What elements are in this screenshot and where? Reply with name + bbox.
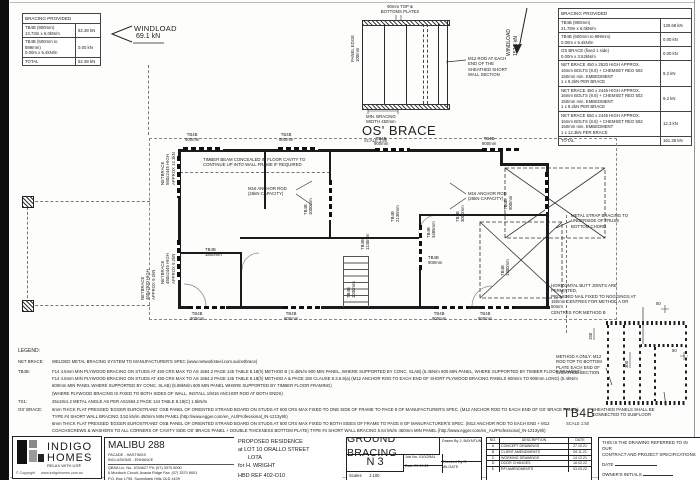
indigo-logo-icon xyxy=(29,450,37,462)
table-row: NET BRACE 450 x 2445 HIGH APPROX. 16mm B… xyxy=(559,87,691,112)
brace-panel xyxy=(177,156,180,198)
contract-date-label: DATE xyxy=(602,462,613,467)
drawing-sheet: BRACING PROVIDED TB4B (900mm) 13.73m x 6… xyxy=(0,0,700,480)
rev-date: 18.02.22 xyxy=(569,461,591,466)
row-value: 82.38 kN xyxy=(76,24,100,37)
plan-label: TB4B 900mm xyxy=(428,255,442,266)
contract-line: CONTRACT AND PROJECT SPECIFICATIONS xyxy=(602,452,698,458)
row-value: 130.68 kN xyxy=(661,19,691,32)
rev-desc: CONCEPT DRAWINGS xyxy=(500,444,569,449)
row-desc: NET BRACE 550 x 2445 HIGH APPROX. 16mm B… xyxy=(559,112,661,136)
bracing-table-left: BRACING PROVIDED TB4B (900mm) 13.73m x 6… xyxy=(22,13,101,66)
wall-segment xyxy=(240,252,242,308)
plan-label: TB4B 900mm xyxy=(185,132,199,143)
rev-col-desc: DESCRIPTION xyxy=(500,438,569,443)
row-value: 9.2 kN xyxy=(661,87,691,111)
tb4b-bottom-plate xyxy=(606,401,687,405)
table-row: NET BRACE 550 x 2445 HIGH APPROX. 16mm B… xyxy=(559,112,691,137)
brace-panel xyxy=(329,180,332,220)
row-value: 9.2 kN xyxy=(661,61,691,85)
timber-beam-note: TIMBER BEAM CONCEALED IN FLOOR CAVITY TO… xyxy=(203,157,323,168)
legend-title: LEGEND: xyxy=(18,348,40,355)
os-detail-stud xyxy=(438,24,439,104)
table-row: TB4B (900mm) 21.78m x 6.0kN/m 130.68 kN xyxy=(559,19,691,33)
tb4b-subfloor-note: SHEATHED PANELS SHALL BE CONNECTED TO SU… xyxy=(592,407,672,418)
panel-edge-dimension-line xyxy=(148,65,149,135)
project-ref: HBD REF 402-O10 xyxy=(238,473,338,480)
rev-date: 27.10.21 xyxy=(569,444,591,449)
legend-tb4b-line: F14 4.5mm MIN PLYWOOD BRACING ON STUDS A… xyxy=(52,376,578,381)
address-line: P.O. Box 1795, Sunnybank Hills QLD 4109 xyxy=(108,477,234,480)
date-value: 20.10.21 xyxy=(414,464,429,468)
plan-label: TB4B 3485mm xyxy=(426,221,437,238)
table-row: TB4B (600mm to 899mm) 0.00m x 5.4kN/m 0.… xyxy=(559,33,691,47)
brace-panel xyxy=(545,172,548,212)
table-row: TB4B (600mm to 899mm) 0.00m x 5.4kN/m 0.… xyxy=(23,38,100,58)
legend-os-line: TYPE #4 SHORT WALL BRACING 3.52 kN/m 450… xyxy=(52,414,288,419)
legend-tb4b-line: 600mm MIN PANEL WHERE SUPPORTED BY CONC.… xyxy=(52,383,332,388)
legend-tb4b-line: F14 4.5mm MIN PLYWOOD BRACING ON STUDS A… xyxy=(52,369,581,374)
inclusions-line: INCLUSIONS - ENHANCE xyxy=(108,458,234,465)
logo-tagline: RELAX WITH US® xyxy=(47,463,81,468)
deck-dashed-line xyxy=(30,201,150,202)
rev-desc: DOOR CHANGES xyxy=(500,461,569,466)
wall-segment xyxy=(240,237,422,239)
tb4b-dim-300: 300 xyxy=(624,361,629,368)
contract-owner-row: OWNER'S INITIALS xyxy=(602,471,698,478)
rev-date: 14.12.21 xyxy=(569,456,591,461)
plan-label: TB4B 2130mm xyxy=(390,205,401,222)
total-label: TOTAL xyxy=(23,58,76,66)
netbrace-label: NETBRACE 450x2445 HIGH APPROX 9.2kN xyxy=(160,253,176,284)
bracing-table-right: BRACING PROVIDED TB4B (900mm) 21.78m x 6… xyxy=(558,8,692,146)
os-detail-top-label: 90mm TOP & BOTTOMS PLATES xyxy=(378,4,422,15)
rev-col-date: DATE xyxy=(569,438,591,443)
section-dash-dot-line xyxy=(566,215,567,333)
row-value: 0.00 kN xyxy=(661,33,691,46)
plan-label: TB4B 900mm xyxy=(279,132,293,143)
builder-box: MALIBU 288 FACADE - HASTINGS INCLUSIONS … xyxy=(104,437,238,480)
tb4b-dim-150: 150 xyxy=(588,333,593,340)
drawn-value: J. BAYNTUN xyxy=(460,439,482,443)
contract-owner-label: OWNER'S INITIALS xyxy=(602,472,642,477)
os-detail-stud xyxy=(406,24,407,104)
rev-no: D xyxy=(487,461,500,466)
brace-panel xyxy=(419,225,422,270)
tb4b-top-plate xyxy=(606,321,687,325)
checked-label: Checked By xyxy=(442,460,462,464)
os-detail-right-label: M12 ROD AT EACH END OF THE SHEATHED SHOR… xyxy=(468,56,514,77)
os-detail-rod-dashed xyxy=(427,24,428,104)
tb4b-dim-50: 50 xyxy=(672,348,677,353)
indigo-logo-icon xyxy=(29,440,37,448)
legend-os-line: 6mm THICK FLAT PRESSED 'EGGER EUROSTRAND… xyxy=(52,421,550,426)
legend-tb4b-label: TB4B: xyxy=(18,369,30,374)
legend-ts1-text: 25x18x1.2 METAL ANGLE AS PER AS1684.2 PA… xyxy=(52,399,207,404)
rev-no: B xyxy=(487,450,500,455)
row-value: 12.3 kN xyxy=(661,112,691,136)
legend-os-line: COACHSCREWS & WASHERS TO ALL CORNERS OF … xyxy=(52,428,546,433)
revisions-box: NO. DESCRIPTION DATE A CONCEPT DRAWINGS … xyxy=(486,437,592,480)
row-desc: NET BRACE 450 x 2520 HIGH APPROX. 16mm B… xyxy=(559,61,661,85)
windload-right-value: 157.3 kN xyxy=(513,36,519,56)
butt-joints-note: HORIZONTAL BUTT JOINTS ARE PERMITTED, PR… xyxy=(551,283,637,315)
brace-panel xyxy=(375,148,410,151)
windload-left-label: WINDLOAD xyxy=(134,24,177,33)
brace-panel xyxy=(188,306,226,309)
os-detail-left-label: PANEL EDGE 100mm xyxy=(350,35,361,62)
project-line: at LOT 10 ORALLO STREET xyxy=(238,447,338,454)
deck-post xyxy=(22,300,34,312)
table-header: BRACING PROVIDED xyxy=(23,14,100,24)
table-row: TB4B (900mm) 13.73m x 6.0kN/m 82.38 kN xyxy=(23,24,100,38)
plan-label: TB4B 1130mm xyxy=(360,234,371,250)
netbrace-label: NETBRACE 550x2445 HIGH APPROX 12.3kN xyxy=(160,152,176,185)
brace-panel xyxy=(434,306,469,309)
logo-box: INDIGO HOMES RELAX WITH US® © Copyright … xyxy=(12,436,102,479)
tb4b-stud xyxy=(654,347,656,401)
job-label: Job No. xyxy=(405,455,418,459)
table-header: BRACING PROVIDED xyxy=(559,9,691,19)
row-desc: TB4B (600mm to 899mm) 0.00m x 5.4kN/m xyxy=(23,38,76,57)
plan-label: TB4B 900mm xyxy=(284,311,298,322)
job-value: 010ORAL xyxy=(419,455,436,459)
windload-right-label: WINDLOAD xyxy=(506,29,512,56)
brace-panel xyxy=(480,306,515,309)
anchor-rod-note: M16 ANCHOR ROD (25kN CAPACITY) xyxy=(248,186,296,197)
timber-beam-dashed-line xyxy=(180,172,330,173)
legend-tb4b-line: (WHERE PLYWOOD BRACING IS FIXED TO BOTH … xyxy=(52,391,283,396)
drawing-title: GROUND BRACING xyxy=(347,438,440,455)
brace-panel xyxy=(183,147,223,150)
date-label: Date xyxy=(405,464,413,468)
rev-date: 09.11.21 xyxy=(569,450,591,455)
rev-col-no: NO. xyxy=(487,438,500,443)
plan-label: TB4B 900mm xyxy=(482,136,496,147)
rev-desc: WORKING DRAWINGS xyxy=(500,456,569,461)
table-row: OS BRACE (fixed 1 side) 0.00m x 3.52kN/m… xyxy=(559,47,691,61)
signature-line xyxy=(643,471,673,476)
table-total-row: TOTAL 82.38 kN xyxy=(23,58,100,66)
plan-label: TB4B 900mm xyxy=(190,311,204,322)
legend-ts1-label: TS1: xyxy=(18,399,27,404)
row-desc: OS BRACE (fixed 1 side) 0.00m x 3.52kN/m xyxy=(559,47,661,60)
total-value: 82.38 kN xyxy=(76,58,100,66)
sheet-right-border xyxy=(694,0,695,480)
sheet-number: N 3 xyxy=(347,454,404,472)
tb4b-dim-50: 50 xyxy=(656,301,661,306)
project-line: PROPOSED RESIDENCE xyxy=(238,439,338,446)
total-value: 161.38 kN xyxy=(661,137,691,145)
row-desc: TB4B (900mm) 13.73m x 6.0kN/m xyxy=(23,24,76,37)
plan-label: TB4B 3000mm xyxy=(455,205,466,222)
plan-label: TB4B 900mm xyxy=(503,196,514,210)
row-desc: NET BRACE 450 x 2445 HIGH APPROX. 16mm B… xyxy=(559,87,661,111)
row-value: 0.00 kN xyxy=(661,47,691,60)
plan-label: TB4B 1000mm xyxy=(303,198,314,215)
plan-label: TB4B 900mm xyxy=(374,136,388,147)
date-cell: Date 20.10.21 xyxy=(404,463,443,473)
brace-panel xyxy=(283,306,321,309)
tb4b-mid-plate xyxy=(640,344,687,347)
scales-label: Scales xyxy=(349,473,362,479)
legend-os-line: 6mm THICK FLAT PRESSED 'EGGER EUROSTRAND… xyxy=(52,407,579,412)
legend-net-text: WELDED METAL BRACING SYSTEM TO MANUFACTU… xyxy=(52,359,257,364)
indigo-logo-icon xyxy=(17,440,27,464)
wall-segment xyxy=(178,149,503,152)
tb4b-stud xyxy=(685,325,687,401)
os-detail-rod-dashed xyxy=(423,24,424,104)
netbrace-label: NETBRACE 450x2520 HIGH APPROX 9.2kN xyxy=(140,269,156,300)
os-detail-stud xyxy=(384,24,385,104)
plan-label: TB4B 900mm xyxy=(432,311,446,322)
tb4b-stud xyxy=(639,325,641,401)
rev-no: E xyxy=(487,467,500,472)
table-row: NET BRACE 450 x 2520 HIGH APPROX. 16mm B… xyxy=(559,61,691,86)
wall-segment xyxy=(419,214,547,216)
plan-label: TB4B 1030mm xyxy=(346,281,357,298)
revision-row: E RFI AMENDMENTS 03.03.22 xyxy=(487,467,591,472)
legend-net-label: NET BRACE: xyxy=(18,359,44,364)
row-desc: TB4B (600mm to 899mm) 0.00m x 5.4kN/m xyxy=(559,33,661,46)
rev-no: C xyxy=(487,456,500,461)
brace-panel xyxy=(482,148,520,151)
checked-cell: Checked By R. MILGATE xyxy=(441,459,482,480)
logo-copyright: © Copyright xyxy=(16,471,35,476)
row-desc: TB4B (900mm) 21.78m x 6.0kN/m xyxy=(559,19,661,32)
project-line: LOTA xyxy=(248,455,338,462)
rev-no: A xyxy=(487,444,500,449)
row-value: 0.00 kN xyxy=(76,38,100,57)
indigo-logo-icon xyxy=(38,454,44,462)
rev-desc: RFI AMENDMENTS xyxy=(500,467,569,472)
contract-box: THIS IS THE DRAWING REFERRED TO IN OUR C… xyxy=(598,437,700,480)
os-detail-stud xyxy=(362,20,363,108)
plan-label: TB4B 1300mm xyxy=(500,259,511,276)
deck-post xyxy=(22,196,34,208)
deck-dashed-line xyxy=(27,207,28,303)
os-detail-bottom-plate xyxy=(362,104,450,110)
tb4b-detail-scale: SCALE 1:50 xyxy=(566,421,589,426)
signature-line xyxy=(615,461,657,466)
rev-date: 03.03.22 xyxy=(569,467,591,472)
sheet-left-edge xyxy=(0,0,9,480)
model-title: MALIBU 288 xyxy=(108,439,234,453)
contract-line: THIS IS THE DRAWING REFERRED TO IN OUR xyxy=(602,440,698,452)
scales-value: 1:100 xyxy=(369,473,379,479)
plan-label: TB4B 1800mm xyxy=(205,247,222,258)
rev-desc: CLIENT AMENDMENTS xyxy=(500,450,569,455)
windload-left-value: 69.1 kN xyxy=(136,33,160,40)
os-detail-stud xyxy=(447,20,448,108)
sheet-top-border xyxy=(10,2,694,3)
logo-website: www.indigohomes.com.au xyxy=(41,471,83,476)
drawing-box: GROUND BRACING N 3 Scales 1:100 Job No. … xyxy=(346,437,482,480)
project-box: PROPOSED RESIDENCE at LOT 10 ORALLO STRE… xyxy=(234,437,342,480)
legend-os-label: OS' BRACE: xyxy=(18,407,42,412)
deck-dashed-line xyxy=(30,305,150,306)
brace-panel xyxy=(177,240,180,280)
metal-strap-note: METAL STRAP BRACING TO UNDERSIDE OF TRUS… xyxy=(571,213,633,229)
plan-label: TB4B 900mm xyxy=(478,311,492,322)
drawn-label: Drawn By xyxy=(442,439,458,443)
wall-segment xyxy=(500,163,548,166)
brace-panel xyxy=(278,147,318,150)
project-line: for H. WRIGHT xyxy=(238,463,338,470)
contract-date-row: DATE xyxy=(602,461,698,468)
